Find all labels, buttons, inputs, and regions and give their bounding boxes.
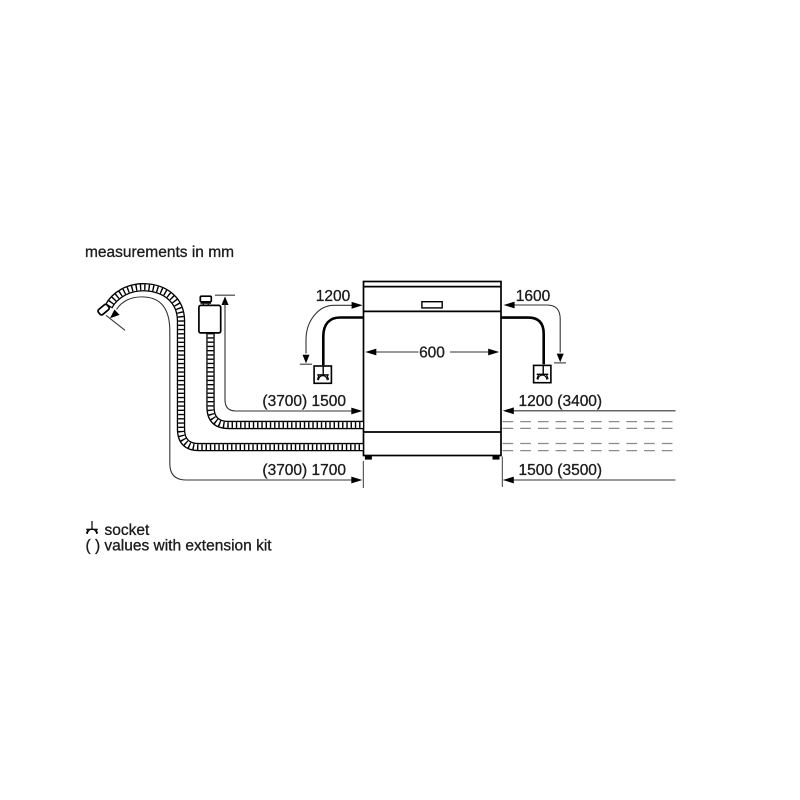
svg-text:measurements in mm: measurements in mm (85, 244, 234, 261)
svg-text:1500 (3500): 1500 (3500) (519, 462, 603, 479)
svg-text:1600: 1600 (516, 288, 551, 305)
svg-text:socket: socket (105, 522, 150, 539)
svg-text:( ) values with extension kit: ( ) values with extension kit (86, 538, 273, 555)
svg-text:(3700) 1500: (3700) 1500 (262, 393, 346, 410)
svg-text:1200: 1200 (316, 288, 351, 305)
svg-text:600: 600 (419, 345, 445, 362)
svg-text:1200 (3400): 1200 (3400) (519, 393, 603, 410)
svg-text:(3700) 1700: (3700) 1700 (262, 462, 346, 479)
